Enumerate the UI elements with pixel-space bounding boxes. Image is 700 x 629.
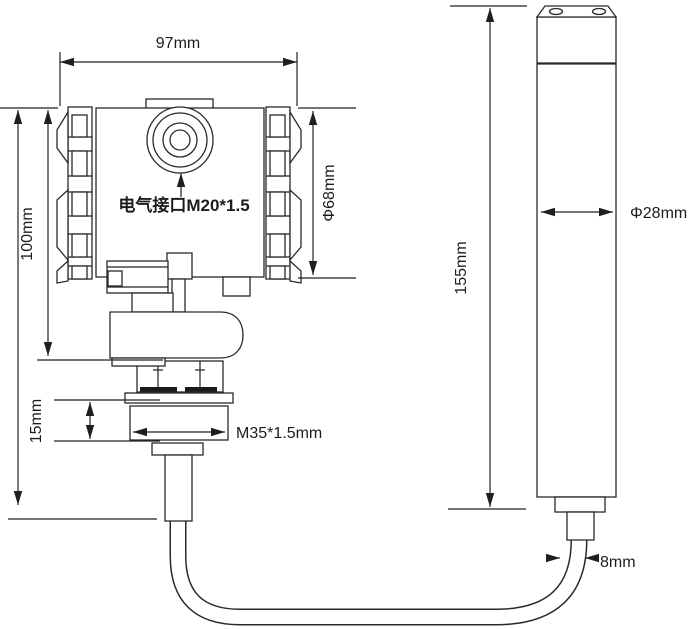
- dim-97mm: 97mm: [60, 35, 297, 106]
- ledge: [112, 358, 165, 366]
- dim-8mm-label: 8mm: [600, 554, 636, 571]
- left-cap-wedge: [57, 261, 68, 283]
- dim-68mm: Φ68mm: [298, 108, 356, 278]
- probe-neck: [567, 512, 594, 540]
- dim-15mm-label: 15mm: [28, 399, 45, 443]
- gasket: [140, 387, 177, 392]
- probe-body: [537, 17, 616, 497]
- dim-100mm-label: 100mm: [19, 207, 36, 260]
- left-cap-wedge: [57, 112, 68, 163]
- left-rib-cap: [57, 107, 92, 283]
- terminal-block: [167, 253, 192, 279]
- gasket: [185, 387, 217, 392]
- right-cap-wedge: [290, 112, 301, 163]
- transmitter-drawing: [57, 99, 301, 521]
- dim-28mm-label: Φ28mm: [630, 205, 687, 222]
- right-cap-wedge: [290, 261, 301, 283]
- side-block: [223, 277, 250, 296]
- outlet-tube: [165, 455, 192, 521]
- drawing-canvas: 97mm 100mm 15mm Φ68mm 155mm Φ28mm 8mm: [0, 0, 700, 629]
- dim-8mm: 8mm: [548, 554, 636, 571]
- stem-post: [172, 279, 185, 312]
- right-rib-cap: [266, 107, 301, 283]
- dimension-drawing: 97mm 100mm 15mm Φ68mm 155mm Φ28mm 8mm: [0, 0, 700, 629]
- probe-drawing: [537, 6, 616, 540]
- dim-97mm-label: 97mm: [156, 35, 200, 52]
- probe-step: [555, 497, 605, 512]
- connection-cable: [178, 518, 579, 617]
- thread-section-m35: [130, 406, 228, 440]
- dim-155mm-label: 155mm: [453, 241, 470, 294]
- m35-thread-label: M35*1.5mm: [236, 425, 322, 442]
- flange-plate: [125, 393, 233, 403]
- right-cap-wedge: [290, 190, 301, 260]
- process-body: [110, 312, 243, 358]
- electrical-port-label: 电气接口M20*1.5: [118, 195, 249, 215]
- electrical-entry-circles: [147, 107, 213, 173]
- collar: [152, 443, 203, 455]
- left-cap-wedge: [57, 190, 68, 260]
- dim-155mm: 155mm: [448, 6, 527, 509]
- dim-68mm-label: Φ68mm: [321, 164, 338, 221]
